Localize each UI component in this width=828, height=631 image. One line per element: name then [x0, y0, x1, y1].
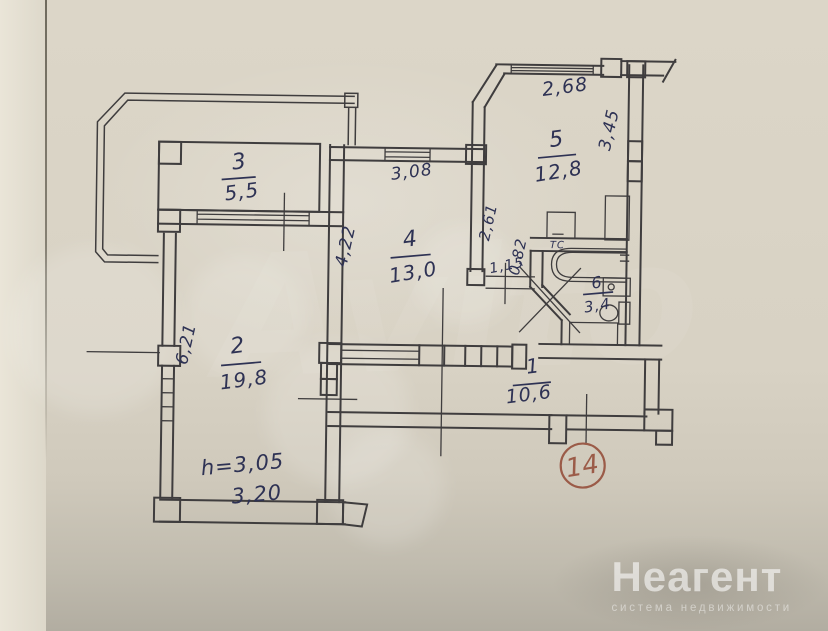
dim-room4-top: 3,08	[390, 160, 434, 185]
central-wall	[297, 145, 360, 503]
apartment-number: 14	[564, 449, 601, 484]
room-4-number: 4	[401, 226, 419, 253]
dim-ceiling-height: h=3,05	[200, 449, 286, 480]
room-1-area: 10,6	[504, 381, 553, 409]
room-4-top-wall	[330, 143, 486, 164]
room-4-label: 4 13,0	[387, 226, 440, 289]
heated-rail-icon	[547, 212, 575, 238]
dim-corridor-depth: 2,61	[475, 202, 501, 242]
dim-room2-left: 6,21	[172, 321, 201, 366]
dim-room4-left: 4,22	[331, 224, 360, 269]
room-5-number: 5	[548, 126, 566, 153]
room-6-area: 3,4	[583, 294, 612, 316]
room-2-area: 19,8	[218, 365, 269, 395]
neagent-logo: Неагент система недвижимости	[611, 556, 792, 614]
room-6-label: 6 3,4	[582, 272, 613, 317]
vent-shaft-vertical	[605, 196, 630, 240]
room-2-left-wall	[85, 233, 184, 522]
fixture-label-tc: ТС	[550, 240, 565, 251]
room-3-label: 3 5,5	[221, 149, 261, 206]
dim-room5-top: 2,68	[541, 73, 590, 101]
room-3-number: 3	[230, 149, 248, 176]
vent-shaft-horizontal	[569, 322, 617, 345]
room-5-label: 5 12,8	[532, 126, 585, 188]
balcony-railing	[96, 90, 358, 266]
neagent-logo-text: Неагент	[611, 556, 792, 598]
dim-room2-bottom: 3,20	[230, 480, 283, 509]
room-2-label: 2 19,8	[218, 333, 270, 396]
wardrobe-band	[328, 287, 527, 457]
room-2-number: 2	[229, 333, 247, 360]
room-6-number: 6	[590, 272, 603, 292]
room-5-area: 12,8	[533, 155, 585, 186]
hallway-bottom-wall	[328, 391, 673, 445]
dim-room5-right: 3,45	[595, 107, 624, 152]
floor-plan-drawing: 3 5,5 2 19,8 4 13,0 5 12,8 6 3,4 1 10,6	[0, 0, 828, 631]
apartment-number-badge: 14	[560, 443, 605, 488]
room-3-area: 5,5	[223, 177, 261, 205]
room-4-area: 13,0	[387, 256, 439, 287]
neagent-tagline: система недвижимости	[611, 602, 792, 614]
